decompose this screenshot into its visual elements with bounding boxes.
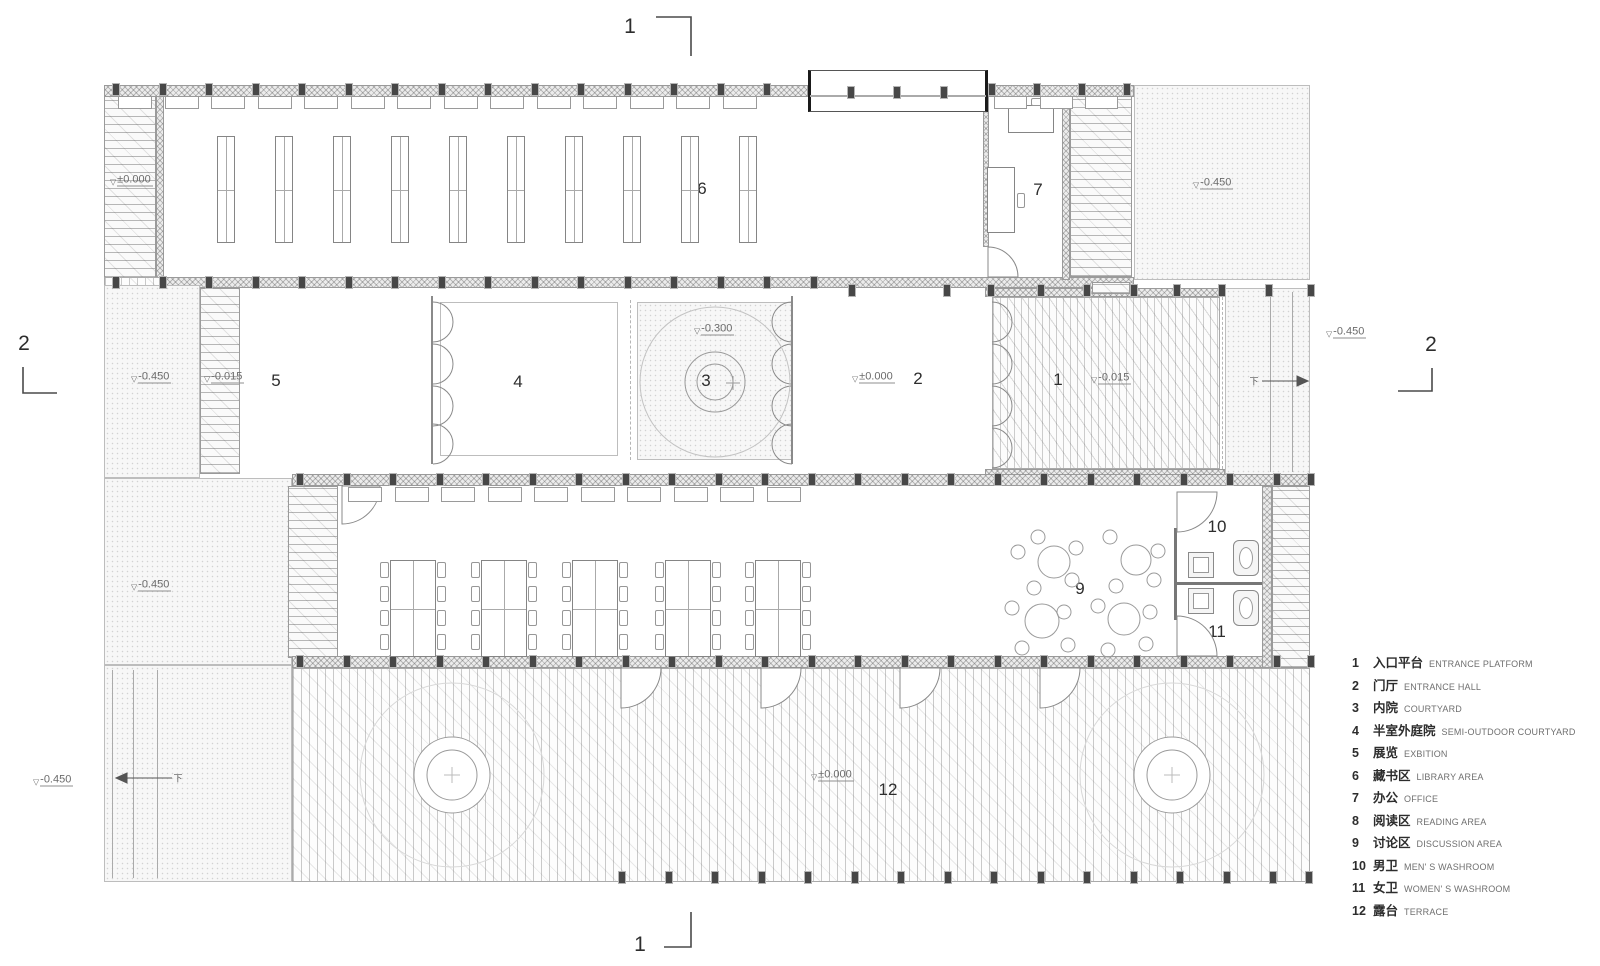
column-marker: [484, 83, 492, 96]
column-marker: [990, 871, 998, 884]
wall-lower-north: [292, 474, 1312, 486]
stair-tread: [1292, 292, 1293, 472]
legend-number: 7: [1352, 791, 1367, 805]
column-marker: [1218, 284, 1226, 297]
section-marker-1-bottom: 1: [634, 933, 646, 957]
column-marker: [1078, 83, 1086, 96]
column-marker: [1265, 284, 1273, 297]
chair: [745, 634, 754, 650]
chair: [437, 586, 446, 602]
chair: [802, 610, 811, 626]
column-marker: [438, 276, 446, 289]
column-marker: [1305, 871, 1313, 884]
column-marker: [848, 284, 856, 297]
legend-number: 3: [1352, 701, 1367, 715]
chair: [471, 634, 480, 650]
column-marker: [804, 871, 812, 884]
column-marker: [1133, 655, 1141, 668]
stair-tread: [1270, 292, 1271, 472]
legend-item: 6藏书区LIBRARY AREA: [1352, 765, 1576, 784]
bookshelf: [507, 136, 525, 243]
column-marker: [1307, 473, 1315, 486]
legend-name-en: DISCUSSION AREA: [1417, 839, 1503, 849]
level-triangle-icon: ▽: [1091, 376, 1097, 384]
chair: [380, 634, 389, 650]
column-marker: [436, 655, 444, 668]
column-marker: [851, 871, 859, 884]
column-marker: [810, 276, 818, 289]
column-marker: [624, 83, 632, 96]
column-marker: [897, 871, 905, 884]
legend-name-zh: 内院: [1373, 697, 1398, 716]
chair: [437, 634, 446, 650]
chair: [619, 610, 628, 626]
window-sill: [351, 96, 385, 109]
column-marker: [577, 83, 585, 96]
legend-number: 12: [1352, 904, 1367, 918]
bookshelf: [565, 136, 583, 243]
column-marker: [854, 655, 862, 668]
room-label-1: 1: [1053, 370, 1062, 390]
window-sill: [304, 96, 338, 109]
column-marker: [854, 473, 862, 486]
level-triangle-icon: ▽: [852, 375, 858, 383]
level-triangle-icon: ▽: [204, 375, 210, 383]
column-marker: [343, 655, 351, 668]
window-sill: [165, 96, 199, 109]
window-sill: [581, 487, 615, 502]
room-label-9: 9: [1075, 579, 1084, 599]
window-sill: [994, 96, 1027, 109]
window-sill: [1040, 96, 1073, 109]
chair: [437, 610, 446, 626]
legend-number: 4: [1352, 724, 1367, 738]
legend-number: 1: [1352, 656, 1367, 670]
window-sill: [767, 487, 801, 502]
section-marker-2-left: 2: [18, 332, 30, 356]
column-marker: [1223, 871, 1231, 884]
legend-number: 10: [1352, 859, 1367, 873]
wall-lower-south: [292, 656, 1312, 668]
window-sill: [723, 96, 757, 109]
bookshelf: [681, 136, 699, 243]
column-marker: [345, 276, 353, 289]
column-marker: [577, 276, 585, 289]
window-sill: [211, 96, 245, 109]
column-marker: [1226, 655, 1234, 668]
column-marker: [205, 83, 213, 96]
room-label-12: 12: [879, 780, 898, 800]
chair: [471, 586, 480, 602]
chair: [655, 610, 664, 626]
column-marker: [670, 83, 678, 96]
chair: [655, 634, 664, 650]
chair: [745, 562, 754, 578]
chair: [745, 586, 754, 602]
chair: [528, 634, 537, 650]
column-marker: [758, 871, 766, 884]
legend-name-en: OFFICE: [1404, 794, 1438, 804]
east-stair-yard: [1225, 288, 1310, 478]
chair: [471, 562, 480, 578]
column-marker: [940, 86, 948, 99]
window-sill: [674, 487, 708, 502]
column-marker: [622, 473, 630, 486]
column-marker: [345, 83, 353, 96]
room-label-5: 5: [271, 371, 280, 391]
column-marker: [1083, 871, 1091, 884]
column-marker: [575, 473, 583, 486]
column-marker: [298, 83, 306, 96]
legend-name-en: MEN' S WASHROOM: [1404, 862, 1494, 872]
legend-name-en: ENTRANCE PLATFORM: [1429, 659, 1533, 669]
column-marker: [761, 473, 769, 486]
level-triangle-icon: ▽: [131, 375, 137, 383]
window-sill: [348, 487, 382, 502]
legend-name-zh: 讨论区: [1373, 832, 1411, 851]
reading-table: [572, 560, 618, 657]
reading-table: [755, 560, 801, 657]
room-label-4: 4: [513, 372, 522, 392]
legend-item: 5展览EXBITION: [1352, 742, 1576, 761]
column-marker: [391, 276, 399, 289]
window-sill: [534, 487, 568, 502]
sw-stair-tread: [133, 670, 134, 878]
level-triangle-icon: ▽: [694, 327, 700, 335]
legend-item: 10男卫MEN' S WASHROOM: [1352, 855, 1576, 874]
column-marker: [717, 276, 725, 289]
window-sill: [441, 487, 475, 502]
column-marker: [1040, 473, 1048, 486]
chair: [745, 610, 754, 626]
wall-left-library: [156, 96, 164, 278]
wall-west-reading: [288, 486, 338, 658]
column-marker: [482, 473, 490, 486]
legend-name-en: LIBRARY AREA: [1417, 772, 1484, 782]
column-marker: [1226, 473, 1234, 486]
column-marker: [1180, 655, 1188, 668]
column-marker: [717, 83, 725, 96]
column-marker: [711, 871, 719, 884]
chair: [712, 562, 721, 578]
column-marker: [944, 871, 952, 884]
legend-number: 9: [1352, 836, 1367, 850]
elevation-marker: ▽-0.450: [1193, 177, 1233, 190]
elevation-marker: ▽±0.000: [852, 371, 895, 384]
legend-name-en: ENTRANCE HALL: [1404, 682, 1481, 692]
bookshelf: [275, 136, 293, 243]
window-sill: [258, 96, 292, 109]
legend-item: 1入口平台ENTRANCE PLATFORM: [1352, 652, 1576, 671]
column-marker: [988, 83, 996, 96]
column-marker: [808, 473, 816, 486]
column-marker: [1037, 871, 1045, 884]
column-marker: [389, 473, 397, 486]
column-marker: [531, 83, 539, 96]
window-sill: [537, 96, 571, 109]
level-triangle-icon: ▽: [1193, 181, 1199, 189]
column-marker: [436, 473, 444, 486]
bookshelf: [391, 136, 409, 243]
column-marker: [1130, 284, 1138, 297]
legend-name-zh: 男卫: [1373, 855, 1398, 874]
column-marker: [252, 276, 260, 289]
chair: [712, 634, 721, 650]
column-marker: [668, 473, 676, 486]
legend-item: 3内院COURTYARD: [1352, 697, 1576, 716]
washroom-divider: [1177, 582, 1262, 585]
legend-item: 2门厅ENTRANCE HALL: [1352, 675, 1576, 694]
section-marker-2-right: 2: [1425, 333, 1437, 357]
east-porch-lower: [1272, 486, 1310, 668]
chair: [528, 562, 537, 578]
reading-table: [481, 560, 527, 657]
column-marker: [947, 473, 955, 486]
column-marker: [296, 655, 304, 668]
chair: [712, 586, 721, 602]
washroom-west-wall: [1174, 528, 1177, 620]
chair: [619, 634, 628, 650]
chair: [471, 610, 480, 626]
chair: [562, 586, 571, 602]
column-marker: [901, 473, 909, 486]
column-marker: [947, 655, 955, 668]
column-marker: [893, 86, 901, 99]
column-marker: [1130, 871, 1138, 884]
west-yard-lower: [104, 478, 292, 665]
reading-table: [390, 560, 436, 657]
column-marker: [1087, 473, 1095, 486]
section-marker-1-top: 1: [624, 15, 636, 39]
discussion-tables: [1005, 530, 1165, 657]
column-marker: [1087, 655, 1095, 668]
column-marker: [298, 276, 306, 289]
legend-name-en: SEMI-OUTDOOR COURTYARD: [1442, 727, 1576, 737]
column-marker: [901, 655, 909, 668]
chair: [802, 562, 811, 578]
column-marker: [715, 655, 723, 668]
column-marker: [763, 83, 771, 96]
sink-womens-basin: [1193, 593, 1209, 609]
elevation-marker: ▽-0.450: [131, 579, 171, 592]
column-marker: [296, 473, 304, 486]
column-marker: [624, 276, 632, 289]
window-sill: [397, 96, 431, 109]
legend-number: 5: [1352, 746, 1367, 760]
column-marker: [531, 276, 539, 289]
column-marker: [1133, 473, 1141, 486]
column-marker: [112, 83, 120, 96]
level-triangle-icon: ▽: [811, 773, 817, 781]
bookshelf: [739, 136, 757, 243]
column-marker: [1123, 83, 1131, 96]
legend-number: 2: [1352, 679, 1367, 693]
elevation-marker: ▽-0.450: [33, 774, 73, 787]
elevation-marker: ▽±0.000: [811, 769, 854, 782]
column-marker: [1040, 655, 1048, 668]
column-marker: [112, 276, 120, 289]
sink-mens-basin: [1193, 557, 1209, 573]
window-sill: [627, 487, 661, 502]
column-marker: [808, 655, 816, 668]
chair: [562, 562, 571, 578]
legend-item: 9讨论区DISCUSSION AREA: [1352, 832, 1576, 851]
level-triangle-icon: ▽: [33, 778, 39, 786]
wall-washroom-east: [1262, 486, 1272, 668]
window-sill: [444, 96, 478, 109]
column-marker: [1173, 284, 1181, 297]
legend-item: 11女卫WOMEN' S WASHROOM: [1352, 877, 1576, 896]
legend-item: 12露台TERRACE: [1352, 900, 1576, 919]
legend-item: 8阅读区READING AREA: [1352, 810, 1576, 829]
chair: [619, 586, 628, 602]
level-triangle-icon: ▽: [131, 583, 137, 591]
column-marker: [1033, 83, 1041, 96]
window-sill: [490, 96, 524, 109]
column-marker: [343, 473, 351, 486]
column-marker: [1180, 473, 1188, 486]
sw-stair-tread: [157, 670, 158, 878]
floor-plan: 1 2 3 4 5 6 7 8 9 10 11 12 1 1 2 2 下 下 ▽…: [0, 0, 1600, 966]
room1-door-mat: [1092, 282, 1130, 294]
legend-name-zh: 阅读区: [1373, 810, 1411, 829]
office-desk-side: [987, 167, 1015, 233]
chair: [712, 610, 721, 626]
column-marker: [484, 276, 492, 289]
legend-name-zh: 办公: [1373, 787, 1398, 806]
legend-item: 4半室外庭院SEMI-OUTDOOR COURTYARD: [1352, 720, 1576, 739]
legend-name-en: COURTYARD: [1404, 704, 1462, 714]
stair-direction-label: 下: [1249, 375, 1258, 388]
legend-name-en: TERRACE: [1404, 907, 1448, 917]
column-marker: [1037, 284, 1045, 297]
court-separator: [630, 300, 631, 460]
chair: [528, 610, 537, 626]
toilet-mens-bowl: [1239, 547, 1253, 569]
column-marker: [994, 473, 1002, 486]
window-sill: [676, 96, 710, 109]
window-sill: [630, 96, 664, 109]
column-marker: [618, 871, 626, 884]
column-marker: [529, 655, 537, 668]
column-marker: [159, 276, 167, 289]
legend-name-zh: 露台: [1373, 900, 1398, 919]
chair: [655, 562, 664, 578]
column-marker: [665, 871, 673, 884]
reading-table: [665, 560, 711, 657]
block-right-edge: [791, 296, 793, 464]
window-sill: [583, 96, 617, 109]
legend-name-zh: 女卫: [1373, 877, 1398, 896]
elevation-marker: ▽-0.015: [204, 371, 244, 384]
room-label-7: 7: [1033, 180, 1042, 200]
legend-name-en: READING AREA: [1417, 817, 1487, 827]
elevation-marker: ▽-0.015: [1091, 372, 1131, 385]
column-marker: [1273, 473, 1281, 486]
chair: [380, 562, 389, 578]
legend-name-zh: 门厅: [1373, 675, 1398, 694]
column-marker: [438, 83, 446, 96]
room1-east-edge: [1222, 297, 1223, 469]
column-marker: [847, 86, 855, 99]
bookshelf: [449, 136, 467, 243]
column-marker: [715, 473, 723, 486]
chair: [380, 586, 389, 602]
legend-name-zh: 藏书区: [1373, 765, 1411, 784]
legend-number: 8: [1352, 814, 1367, 828]
chair: [619, 562, 628, 578]
room-label-10: 10: [1208, 517, 1227, 537]
column-marker: [622, 655, 630, 668]
legend-number: 6: [1352, 769, 1367, 783]
wall-office-right: [1062, 96, 1070, 280]
column-marker: [994, 655, 1002, 668]
column-marker: [1083, 284, 1091, 297]
legend-name-zh: 入口平台: [1373, 652, 1423, 671]
bookshelf: [623, 136, 641, 243]
stair-direction-label: 下: [173, 772, 182, 785]
chair: [437, 562, 446, 578]
office-chair: [1017, 193, 1025, 208]
legend-name-zh: 半室外庭院: [1373, 720, 1436, 739]
chair: [802, 634, 811, 650]
column-marker: [670, 276, 678, 289]
window-sill: [488, 487, 522, 502]
legend-name-zh: 展览: [1373, 742, 1398, 761]
chair: [528, 586, 537, 602]
window-sill: [118, 96, 152, 109]
column-marker: [1176, 871, 1184, 884]
column-marker: [943, 284, 951, 297]
bookshelf: [333, 136, 351, 243]
toilet-womens-bowl: [1239, 597, 1253, 619]
east-porch-strip: [1070, 96, 1132, 277]
window-sill: [720, 487, 754, 502]
column-marker: [529, 473, 537, 486]
column-marker: [1307, 284, 1315, 297]
column-marker: [391, 83, 399, 96]
office-desk-top: [1008, 105, 1054, 133]
chair: [562, 634, 571, 650]
room-label-2: 2: [913, 369, 922, 389]
chair: [562, 610, 571, 626]
legend-name-en: WOMEN' S WASHROOM: [1404, 884, 1510, 894]
semi-outdoor-courtyard-inner: [440, 302, 618, 456]
chair: [655, 586, 664, 602]
room-label-11: 11: [1208, 622, 1226, 642]
column-marker: [159, 83, 167, 96]
column-marker: [1269, 871, 1277, 884]
legend: 1入口平台ENTRANCE PLATFORM2门厅ENTRANCE HALL3内…: [1352, 652, 1576, 919]
level-triangle-icon: ▽: [1326, 330, 1332, 338]
column-marker: [1307, 655, 1315, 668]
column-marker: [1273, 655, 1281, 668]
level-triangle-icon: ▽: [110, 178, 116, 186]
block-left-edge: [431, 296, 433, 464]
elevation-marker: ▽-0.450: [131, 371, 171, 384]
elevation-marker: ▽±0.000: [110, 174, 153, 187]
bookshelf: [217, 136, 235, 243]
column-marker: [763, 276, 771, 289]
entry-platform-strip: [104, 96, 156, 278]
window-sill: [1085, 96, 1118, 109]
room-label-3: 3: [701, 371, 710, 391]
elevation-marker: ▽-0.450: [1326, 326, 1366, 339]
column-marker: [205, 276, 213, 289]
legend-number: 11: [1352, 881, 1367, 895]
legend-item: 7办公OFFICE: [1352, 787, 1576, 806]
chair: [380, 610, 389, 626]
